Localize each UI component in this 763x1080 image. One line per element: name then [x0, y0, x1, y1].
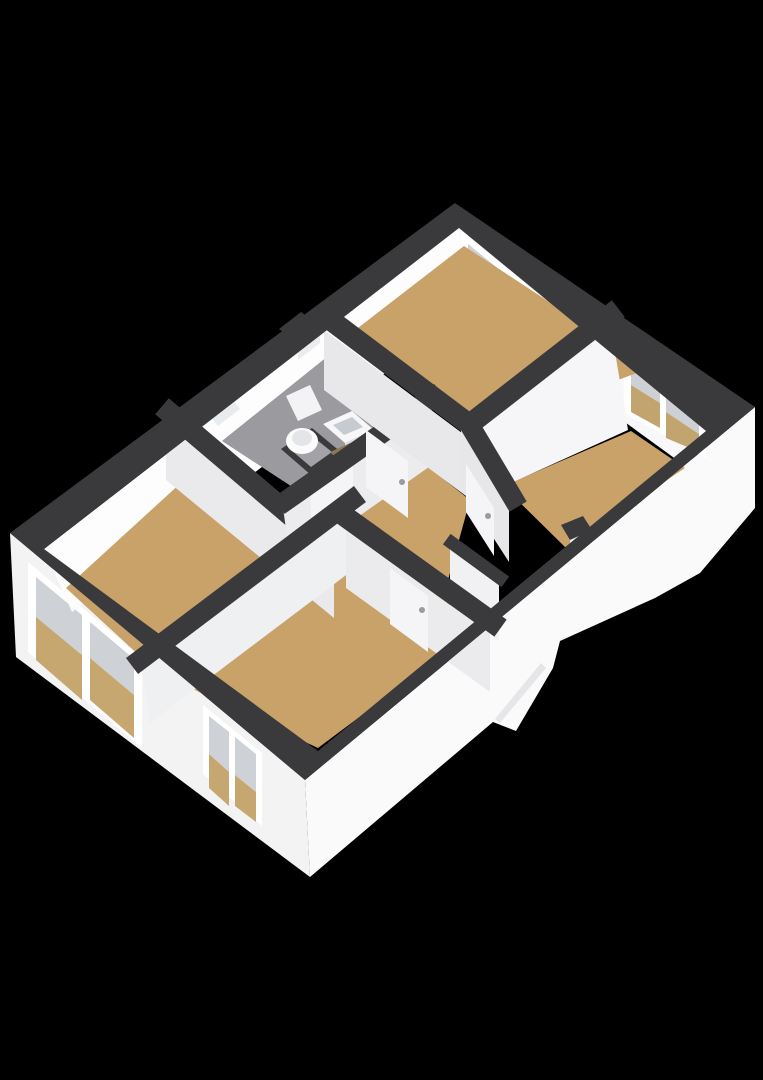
floorplan-3d-render [0, 0, 763, 1080]
door-handle-bedroom-right [485, 513, 491, 519]
floorplan-scene [0, 0, 763, 1080]
door-handle-bedroom-bottom [419, 607, 425, 613]
toilet-seat [292, 430, 312, 446]
door-handle-bedroom-top [399, 479, 405, 485]
